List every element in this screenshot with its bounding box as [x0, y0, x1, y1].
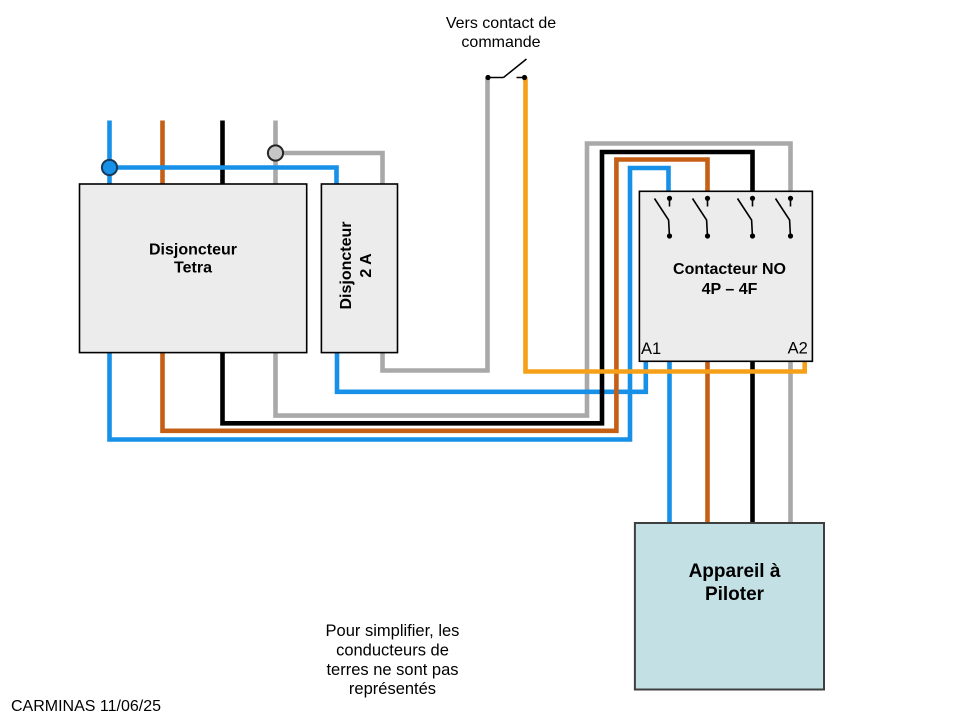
svg-text:CARMINAS 11/06/25: CARMINAS 11/06/25 [11, 698, 161, 715]
svg-text:conducteurs de: conducteurs de [336, 642, 449, 660]
svg-text:2 A: 2 A [358, 253, 375, 278]
svg-text:Appareil à: Appareil à [689, 561, 781, 582]
svg-text:4P – 4F: 4P – 4F [702, 281, 758, 298]
svg-text:Disjoncteur: Disjoncteur [149, 241, 237, 258]
svg-text:représentés: représentés [349, 680, 436, 698]
svg-text:Contacteur NO: Contacteur NO [673, 261, 786, 278]
svg-text:A2: A2 [788, 340, 808, 358]
svg-text:terres ne sont pas: terres ne sont pas [326, 661, 458, 679]
svg-text:Pour simplifier, les: Pour simplifier, les [326, 622, 460, 640]
svg-text:Disjoncteur: Disjoncteur [338, 221, 355, 309]
svg-text:A1: A1 [641, 340, 661, 358]
svg-text:Vers contact de: Vers contact de [446, 15, 556, 32]
svg-text:Piloter: Piloter [705, 584, 765, 605]
svg-text:commande: commande [461, 34, 540, 51]
svg-text:Tetra: Tetra [174, 259, 212, 276]
